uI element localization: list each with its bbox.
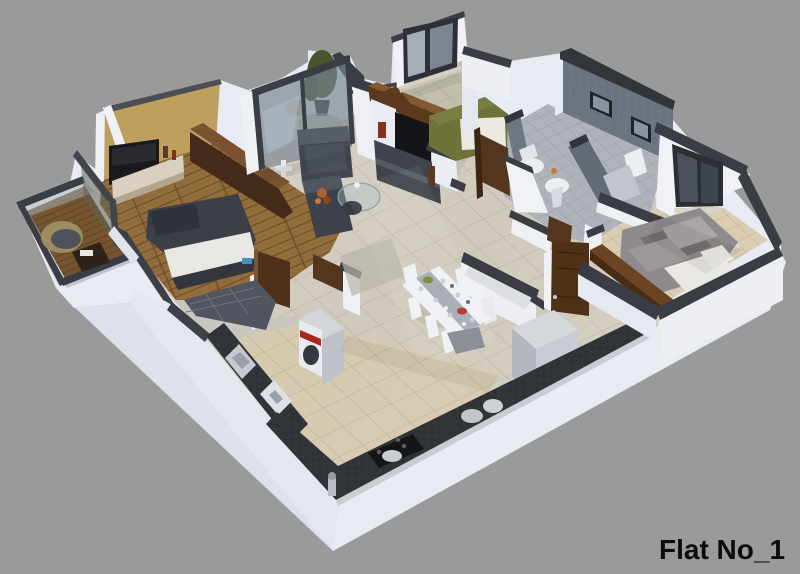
- svg-text:Flat No_1: Flat No_1: [659, 534, 785, 565]
